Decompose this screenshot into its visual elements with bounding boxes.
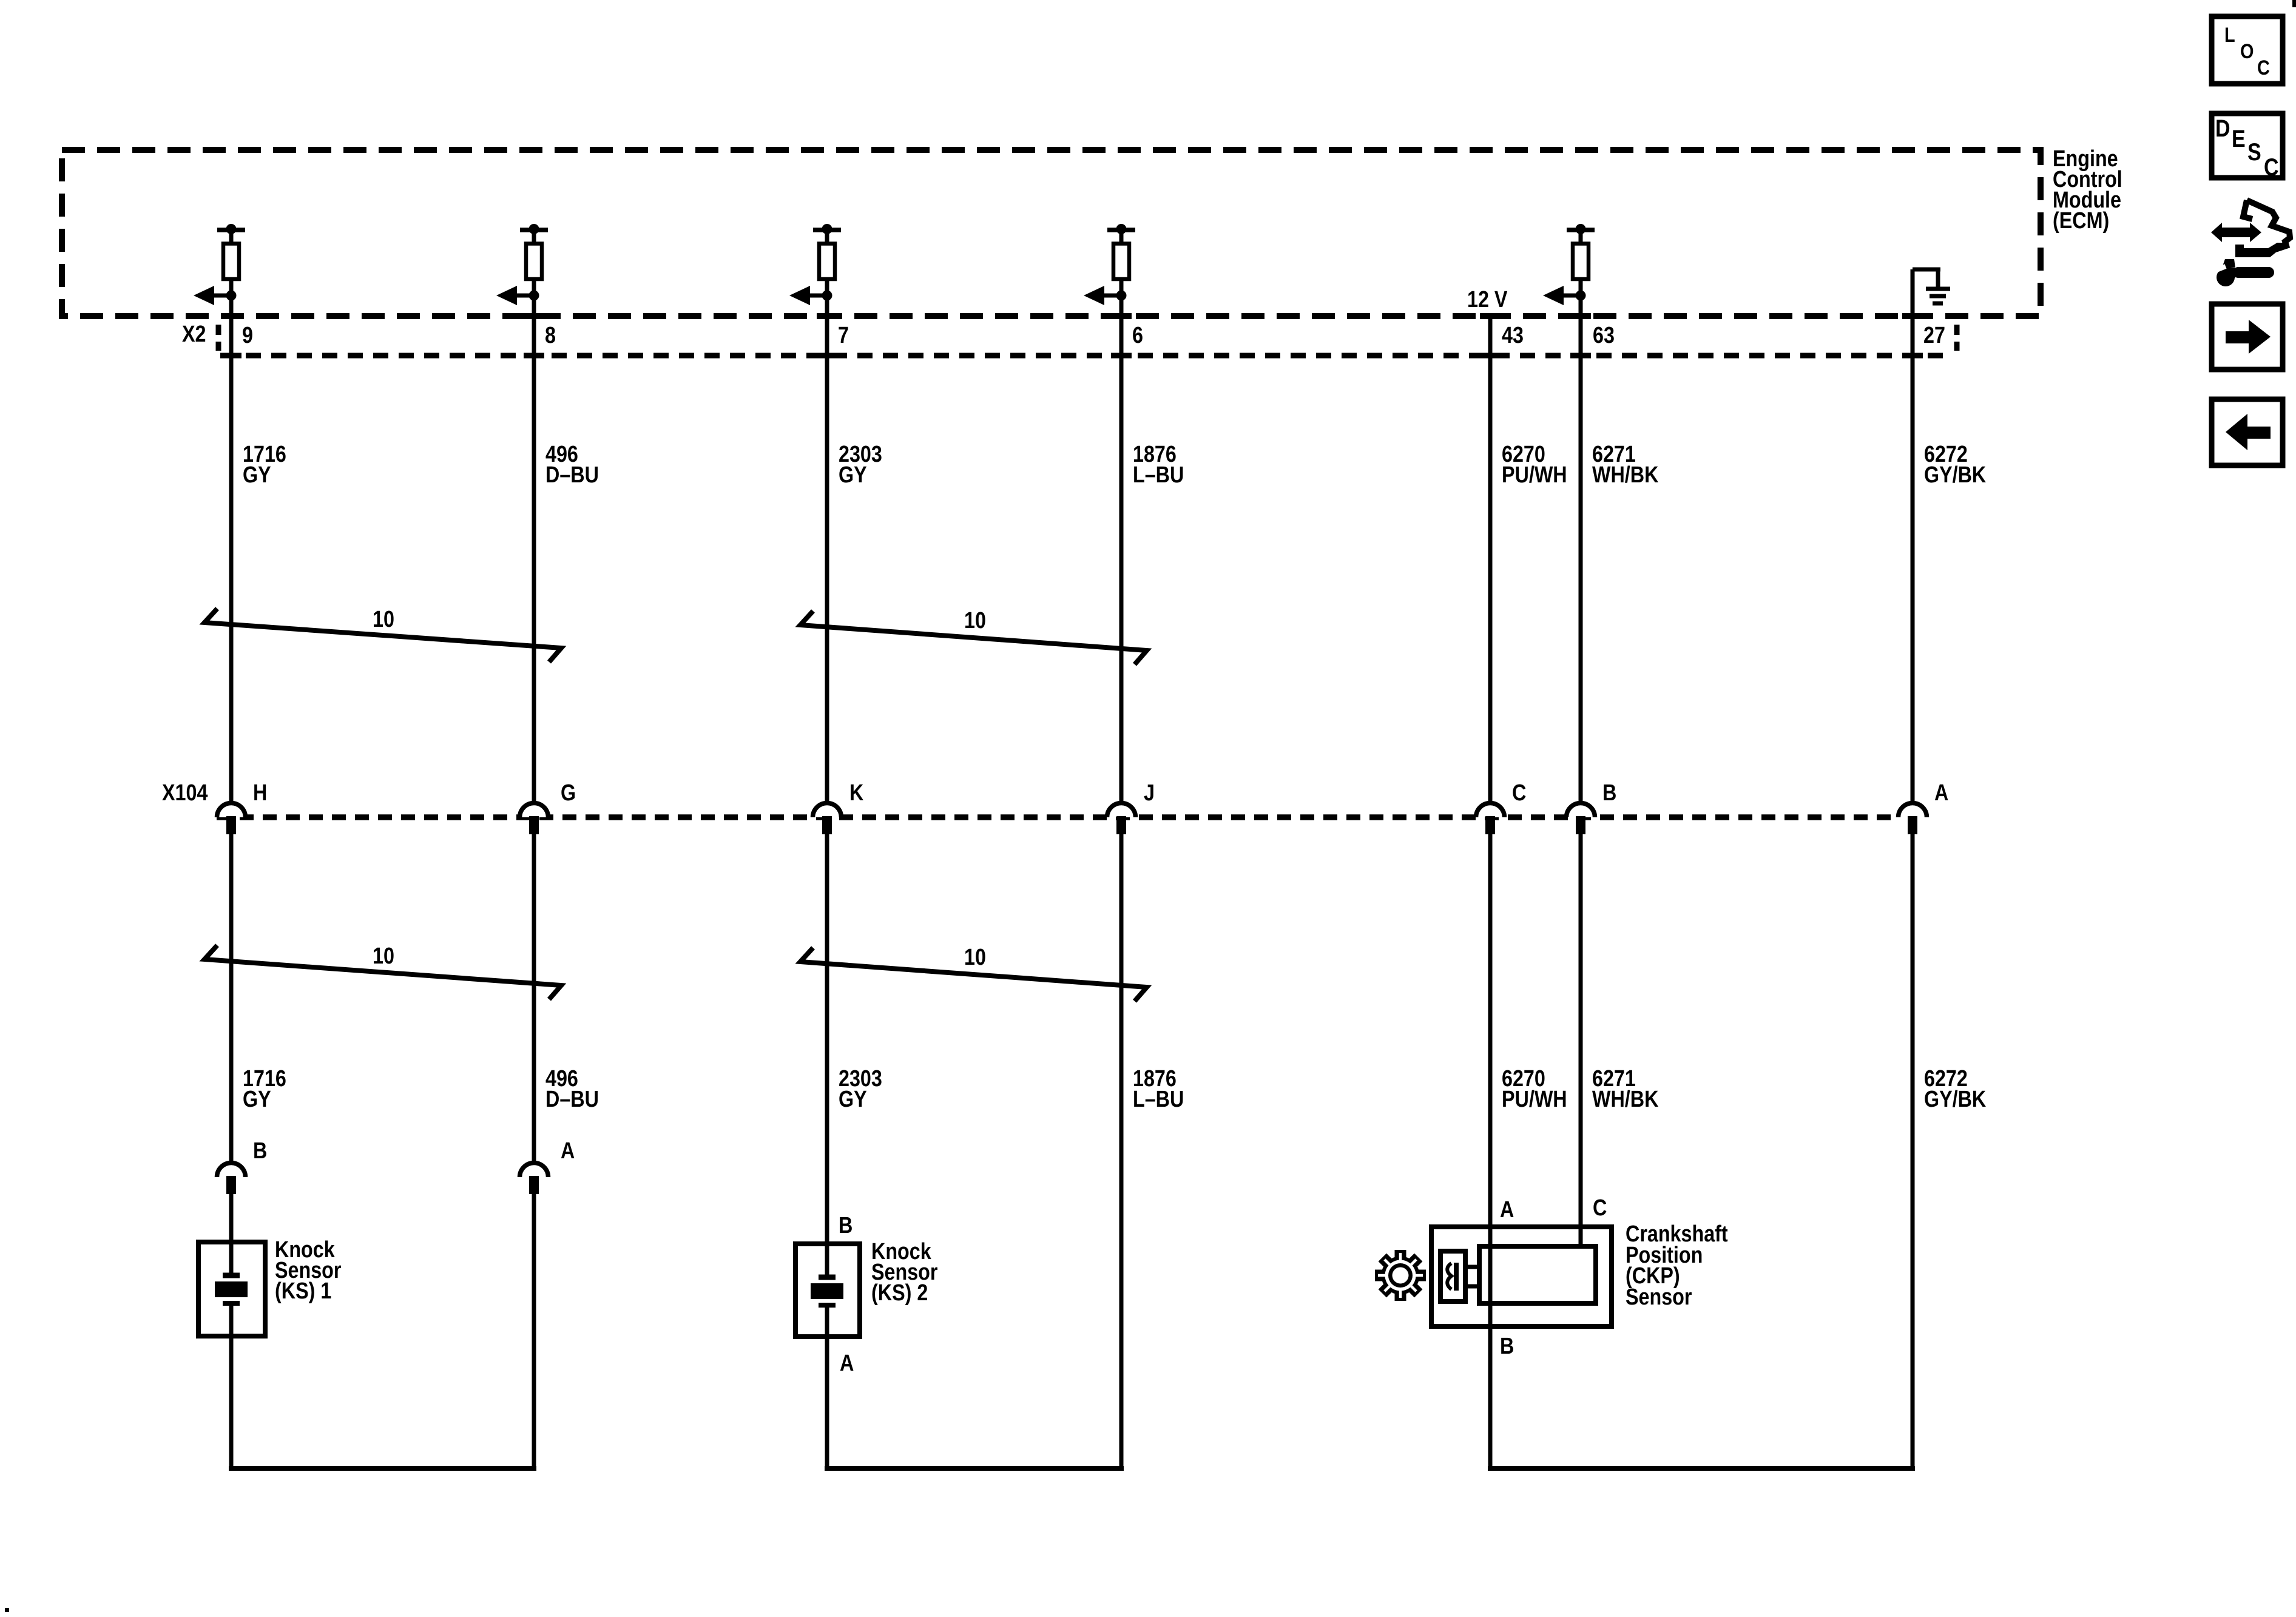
svg-text:27: 27 [1923,323,1945,348]
svg-text:WH/BK: WH/BK [1592,462,1659,488]
svg-text:A: A [840,1351,854,1376]
svg-text:O: O [2240,39,2254,63]
svg-text:(KS) 2: (KS) 2 [871,1280,928,1306]
svg-text:(KS) 1: (KS) 1 [275,1278,331,1304]
svg-text:(ECM): (ECM) [2053,208,2109,234]
svg-text:43: 43 [1502,323,1524,348]
svg-text:10: 10 [373,607,394,632]
svg-text:D: D [2215,114,2230,141]
svg-text:H: H [253,780,267,806]
svg-text:10: 10 [964,945,986,970]
svg-text:L: L [2224,23,2235,47]
svg-text:J: J [1144,780,1155,806]
svg-text:GY/BK: GY/BK [1924,1087,1987,1112]
svg-text:B: B [1602,780,1616,806]
svg-text:10: 10 [964,608,986,633]
svg-text:WH/BK: WH/BK [1592,1087,1659,1112]
svg-text:C: C [1593,1195,1607,1221]
svg-text:63: 63 [1593,323,1615,348]
svg-text:8: 8 [545,323,556,348]
svg-text:C: C [2257,56,2270,79]
svg-text:PU/WH: PU/WH [1502,1087,1567,1112]
svg-text:GY: GY [839,1087,867,1112]
svg-text:7: 7 [838,323,849,348]
svg-text:E: E [2232,124,2246,152]
svg-text:D–BU: D–BU [545,462,599,488]
svg-text:9: 9 [242,323,253,348]
svg-text:G: G [561,780,576,806]
svg-text:K: K [849,780,864,806]
svg-text:GY/BK: GY/BK [1924,462,1987,488]
svg-text:X104: X104 [162,780,208,806]
svg-text:Sensor: Sensor [1626,1284,1692,1310]
svg-text:D–BU: D–BU [545,1087,599,1112]
svg-text:X2: X2 [182,322,206,347]
svg-text:6: 6 [1132,323,1143,348]
svg-text:B: B [1500,1334,1514,1359]
svg-text:B: B [253,1138,267,1164]
svg-text:PU/WH: PU/WH [1502,462,1567,488]
svg-text:12 V: 12 V [1467,287,1508,312]
svg-text:C: C [1512,780,1526,806]
svg-text:L–BU: L–BU [1133,1087,1184,1112]
svg-text:10: 10 [373,944,394,969]
svg-text:L–BU: L–BU [1133,462,1184,488]
svg-text:A: A [561,1138,575,1164]
svg-text:C: C [2264,153,2279,180]
svg-text:A: A [1500,1197,1514,1223]
svg-text:GY: GY [243,462,271,488]
svg-text:S: S [2247,138,2261,165]
svg-text:GY: GY [243,1087,271,1112]
svg-text:A: A [1934,780,1948,806]
svg-text:GY: GY [839,462,867,488]
svg-text:B: B [839,1213,853,1238]
